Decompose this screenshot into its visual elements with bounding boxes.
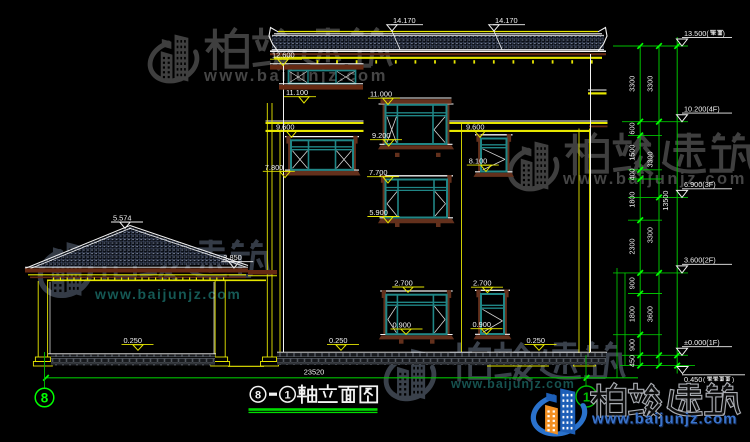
svg-text:1: 1 xyxy=(284,389,290,401)
svg-text:13500: 13500 xyxy=(661,191,670,211)
svg-text:3.600(2F): 3.600(2F) xyxy=(684,256,716,265)
svg-text:0.250: 0.250 xyxy=(527,336,546,345)
svg-text:0.900: 0.900 xyxy=(473,320,492,329)
svg-text:2300: 2300 xyxy=(628,239,637,255)
svg-text:900: 900 xyxy=(628,277,637,289)
svg-text:www.baijunjz.com: www.baijunjz.com xyxy=(450,377,575,391)
svg-text:2.700: 2.700 xyxy=(473,279,492,288)
svg-text:0.450: 0.450 xyxy=(684,375,702,384)
svg-text:3300: 3300 xyxy=(646,76,655,92)
svg-text:±0.000(1F): ±0.000(1F) xyxy=(684,338,720,347)
svg-text:14.170: 14.170 xyxy=(393,16,416,25)
svg-text:3300: 3300 xyxy=(628,76,637,92)
svg-text:www.baijunjz.com: www.baijunjz.com xyxy=(94,286,241,302)
svg-text:2.700: 2.700 xyxy=(394,279,413,288)
svg-text:1800: 1800 xyxy=(628,192,637,208)
svg-text:www.baijunjz.com: www.baijunjz.com xyxy=(591,411,737,428)
svg-text:): ) xyxy=(723,29,725,38)
svg-text:1800: 1800 xyxy=(628,306,637,322)
svg-text:3600: 3600 xyxy=(646,306,655,322)
svg-text:3.850: 3.850 xyxy=(223,253,242,262)
svg-text:12.600: 12.600 xyxy=(272,51,295,60)
svg-text:11.100: 11.100 xyxy=(286,88,308,97)
svg-text:10.200(4F): 10.200(4F) xyxy=(684,105,720,114)
svg-text:3300: 3300 xyxy=(646,227,655,243)
svg-text:9.200: 9.200 xyxy=(372,131,391,140)
svg-text:7.800: 7.800 xyxy=(265,163,284,172)
svg-text:400: 400 xyxy=(628,168,637,180)
svg-text:1: 1 xyxy=(583,389,590,404)
svg-text:9.600: 9.600 xyxy=(276,123,295,132)
svg-text:23520: 23520 xyxy=(304,368,325,377)
svg-text:8: 8 xyxy=(41,390,49,405)
svg-text:600: 600 xyxy=(628,123,637,135)
svg-text:0.250: 0.250 xyxy=(124,336,143,345)
svg-text:13.500(: 13.500( xyxy=(684,29,709,38)
svg-text:9.600: 9.600 xyxy=(466,123,485,132)
svg-text:14.170: 14.170 xyxy=(495,16,518,25)
svg-text:0.900: 0.900 xyxy=(393,321,412,330)
svg-text:7.700: 7.700 xyxy=(369,168,388,177)
svg-text:450: 450 xyxy=(628,355,637,367)
svg-text:5.574: 5.574 xyxy=(113,214,132,223)
svg-text:): ) xyxy=(732,376,734,383)
svg-text:8.100: 8.100 xyxy=(469,157,488,166)
svg-text:1500: 1500 xyxy=(628,145,637,161)
svg-text:11.000: 11.000 xyxy=(370,90,392,99)
svg-text:6.900(3F): 6.900(3F) xyxy=(684,180,716,189)
svg-text:3300: 3300 xyxy=(646,152,655,168)
svg-text:5.900: 5.900 xyxy=(369,208,388,217)
svg-text:8: 8 xyxy=(255,389,261,401)
svg-text:0.250: 0.250 xyxy=(329,336,348,345)
svg-text:900: 900 xyxy=(628,339,637,351)
